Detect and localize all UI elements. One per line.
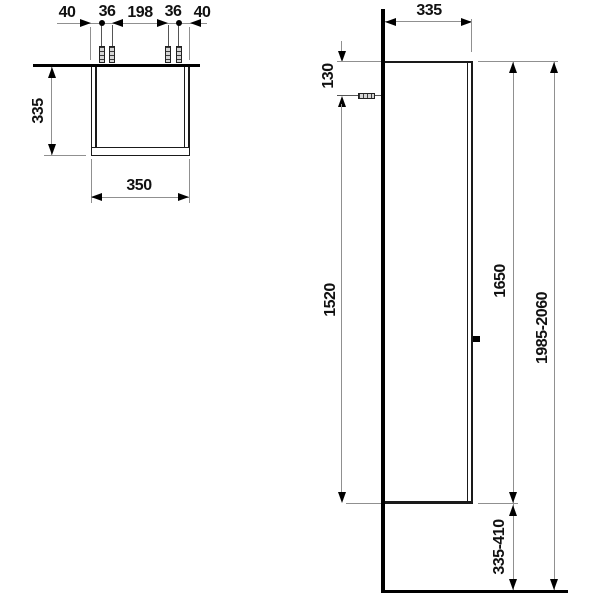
dim-arrow: [91, 193, 102, 201]
wall-anchor-icon: [165, 46, 171, 63]
wall-anchor-icon: [109, 46, 115, 63]
elev-top-ext-line: [478, 61, 558, 62]
plan-front-panel: [91, 147, 190, 156]
dim-label-36-right: 36: [165, 4, 182, 20]
cabinet-bottom-line: [385, 501, 473, 504]
dim-arrow: [509, 492, 517, 503]
dim-dot: [176, 20, 182, 26]
dim-arrow: [509, 579, 517, 590]
plan-wall-line: [33, 64, 200, 67]
dimension-drawing: 40 36 198 36 40 335 350 335 130 1520: [0, 0, 600, 600]
dim-arrow: [338, 492, 346, 503]
dim-arrow: [80, 19, 91, 27]
anchor-leader-line: [168, 25, 169, 46]
dim-label-40-left: 40: [59, 5, 76, 21]
dim-label-1520: 1520: [323, 283, 339, 317]
dim-label-1985-2060: 1985-2060: [535, 292, 551, 364]
plan-width-dim-line: [91, 197, 189, 198]
plan-left-wall-outer: [91, 67, 93, 147]
door-front-outer-line: [471, 61, 473, 504]
plan-right-wall-inner: [184, 67, 186, 147]
dim-arrow: [112, 19, 123, 27]
dim-label-198: 198: [127, 5, 152, 21]
elev-depth-ext-line: [471, 19, 472, 52]
dim-arrow: [338, 51, 346, 62]
dim-arrow: [461, 18, 472, 26]
plan-top-ext-right: [189, 27, 190, 60]
anchor-screw-tip: [375, 95, 381, 96]
dim-arrow: [178, 193, 189, 201]
dim-arrow: [509, 62, 517, 73]
cabinet-height-dim-line: [513, 62, 514, 503]
dim-label-40-right: 40: [194, 5, 211, 21]
anchor-leader-line: [101, 25, 102, 46]
dim-label-130: 130: [321, 63, 337, 88]
dim-label-335-410: 335-410: [492, 519, 508, 574]
dim-label-depth-335: 335: [31, 98, 47, 123]
dim-arrow: [550, 62, 558, 73]
dim-arrow: [509, 505, 517, 516]
door-handle: [473, 336, 481, 342]
plan-depth-ext-line: [44, 155, 86, 156]
plan-depth-dim-line: [51, 67, 52, 155]
plan-top-ext-left: [90, 27, 91, 60]
elevation-wall-line: [381, 9, 385, 593]
dim-label-1650: 1650: [493, 264, 509, 298]
dim-arrow: [157, 19, 168, 27]
cabinet-top-ext-left: [337, 61, 381, 62]
dim-arrow: [48, 67, 56, 78]
cabinet-bottom-ext-left: [346, 503, 381, 504]
cabinet-top-line: [385, 61, 473, 63]
dim-dot: [99, 20, 105, 26]
dim-arrow: [48, 144, 56, 155]
dim-label-width-350: 350: [126, 178, 151, 194]
plan-right-wall-outer: [188, 67, 190, 147]
wall-anchor-icon: [176, 46, 182, 63]
plan-left-wall-inner: [95, 67, 97, 147]
total-height-dim-line: [554, 62, 555, 590]
dim-arrow: [385, 18, 396, 26]
elevation-floor-line: [381, 590, 568, 594]
floor-clearance-dim-line: [513, 504, 514, 590]
dim-arrow: [550, 579, 558, 590]
anchor-leader-line: [178, 25, 179, 46]
elev-depth-dim-line: [385, 21, 472, 22]
anchor-leader-line: [112, 25, 113, 46]
dim-label-36-left: 36: [99, 4, 116, 20]
wall-anchor-icon: [358, 93, 375, 99]
anchor-to-bottom-dim-line: [341, 104, 342, 494]
door-front-inner-line: [467, 61, 469, 504]
wall-anchor-icon: [99, 46, 105, 63]
dim-label-elev-335: 335: [416, 3, 441, 19]
